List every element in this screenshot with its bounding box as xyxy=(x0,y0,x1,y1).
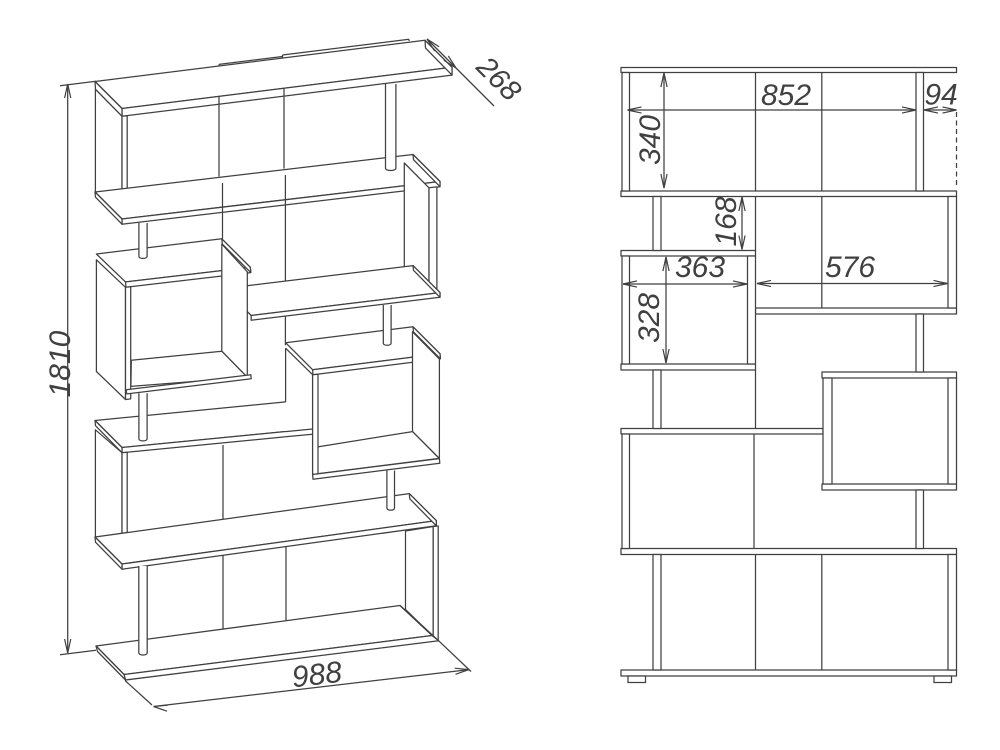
svg-text:363: 363 xyxy=(675,251,725,284)
svg-text:328: 328 xyxy=(633,293,666,343)
svg-text:1810: 1810 xyxy=(44,330,77,397)
svg-text:94: 94 xyxy=(924,79,957,112)
svg-text:576: 576 xyxy=(825,251,875,284)
svg-text:340: 340 xyxy=(634,115,667,165)
svg-text:168: 168 xyxy=(710,196,743,246)
svg-text:852: 852 xyxy=(761,79,811,112)
svg-text:988: 988 xyxy=(290,656,344,695)
